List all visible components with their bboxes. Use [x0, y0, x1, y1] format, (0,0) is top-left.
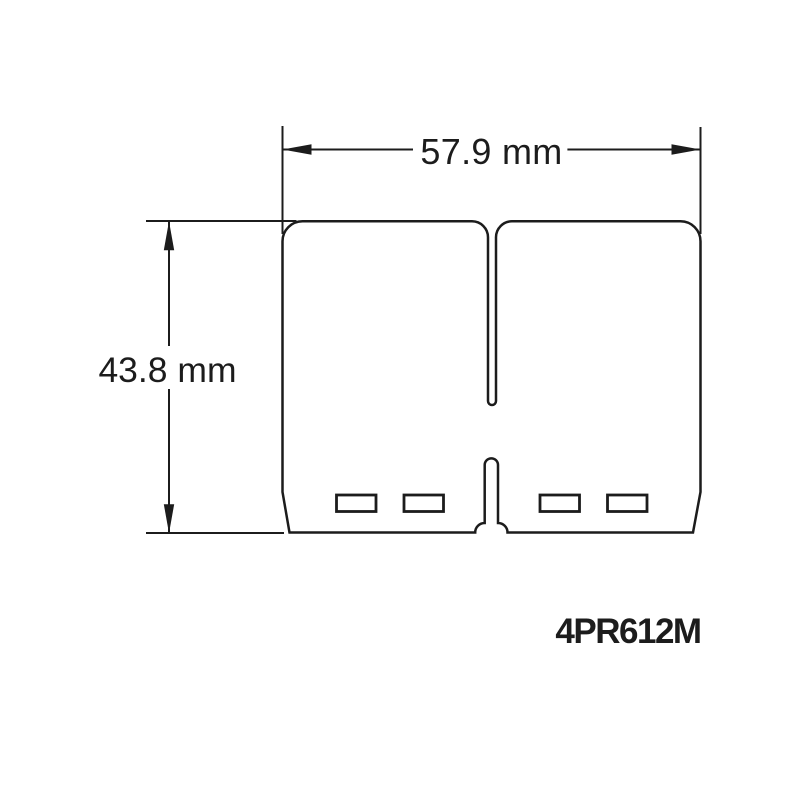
svg-text:4PR612M: 4PR612M [555, 612, 700, 651]
svg-text:57.9 mm: 57.9 mm [420, 131, 562, 172]
svg-text:43.8 mm: 43.8 mm [98, 350, 236, 390]
